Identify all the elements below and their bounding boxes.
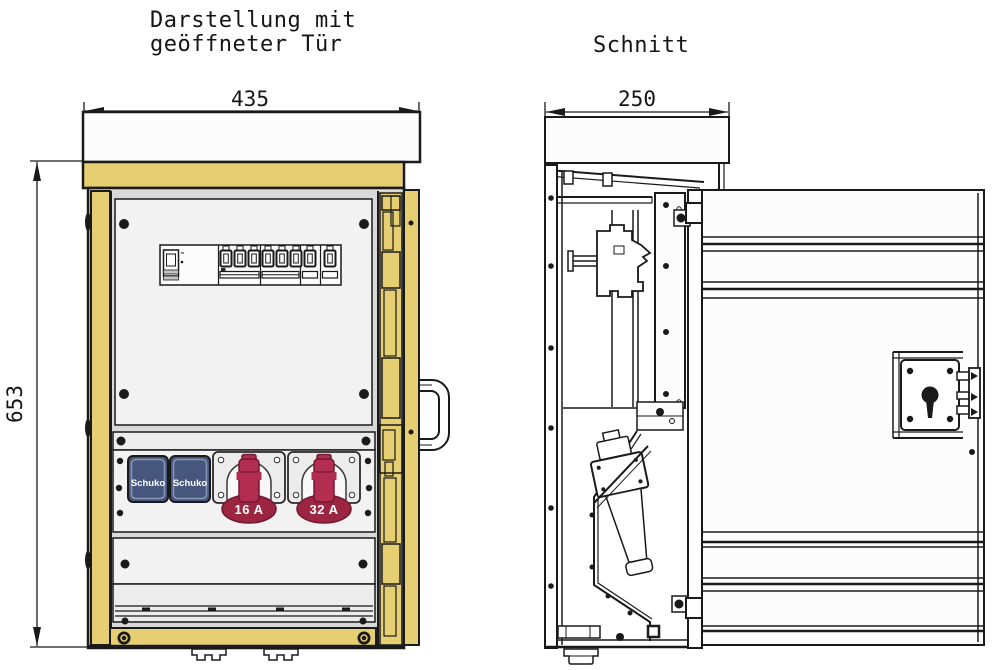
hinge-knuckle [85,213,91,231]
cable-gland [192,649,226,660]
hinge-knuckle [85,419,91,437]
cee-flip-lid [312,455,337,503]
dim-height-label: 653 [3,385,27,423]
mcb-group-3pole-a [220,246,260,278]
distribution-cabinet-drawing: Darstellung mit geöffneter Tür 435 653 [0,0,1000,670]
technical-drawing-page: Darstellung mit geöffneter Tür 435 653 [0,0,1000,670]
hinge-pivot-bottom [675,600,684,609]
dimension-depth: 250 [545,87,729,116]
front-title-line1: Darstellung mit [150,8,356,33]
mcb-single-b [323,246,338,278]
cee-plug-section [585,426,666,579]
section-bottom [545,626,702,664]
schuko-left-label: Schuko [131,478,166,489]
cee-socket-32a: 32 A [288,452,360,523]
dimension-height: 653 [3,161,90,647]
cee-16a-label: 16 A [235,502,264,517]
mcb-single-a [303,246,318,278]
left-frame [91,191,110,645]
schuko-right-label: Schuko [173,478,208,489]
lower-blank-panels [113,538,375,625]
bottom-rail [88,628,404,660]
section-roof [545,117,729,200]
front-title-line2: geöffneter Tür [150,32,342,57]
hinge-pivot-top [677,214,686,223]
section-cee-socket [585,426,666,641]
cee-flip-lid [237,455,262,503]
mcb-group-3pole-b [262,246,302,278]
dim-depth-label: 250 [618,87,656,111]
breaker-row [160,245,341,285]
dim-width-label: 435 [231,87,269,111]
door-edge-open [379,190,419,645]
front-view: Darstellung mit geöffneter Tür 435 653 [3,8,449,660]
hinge-knuckle [85,551,91,569]
cable-gland [264,649,298,660]
section-view: Schnitt 250 [545,33,984,664]
upper-equipment-panel [115,199,372,425]
schuko-socket-left: Schuko [128,456,168,502]
cee-socket-16a: 16 A [213,452,285,523]
cee-32a-label: 32 A [310,502,339,517]
door-handle [419,380,449,450]
schuko-socket-right: Schuko [170,456,210,502]
section-title: Schnitt [593,33,689,58]
front-view-title: Darstellung mit geöffneter Tür [150,8,356,57]
roof-fascia [83,162,404,188]
cabinet-roof [83,112,420,188]
